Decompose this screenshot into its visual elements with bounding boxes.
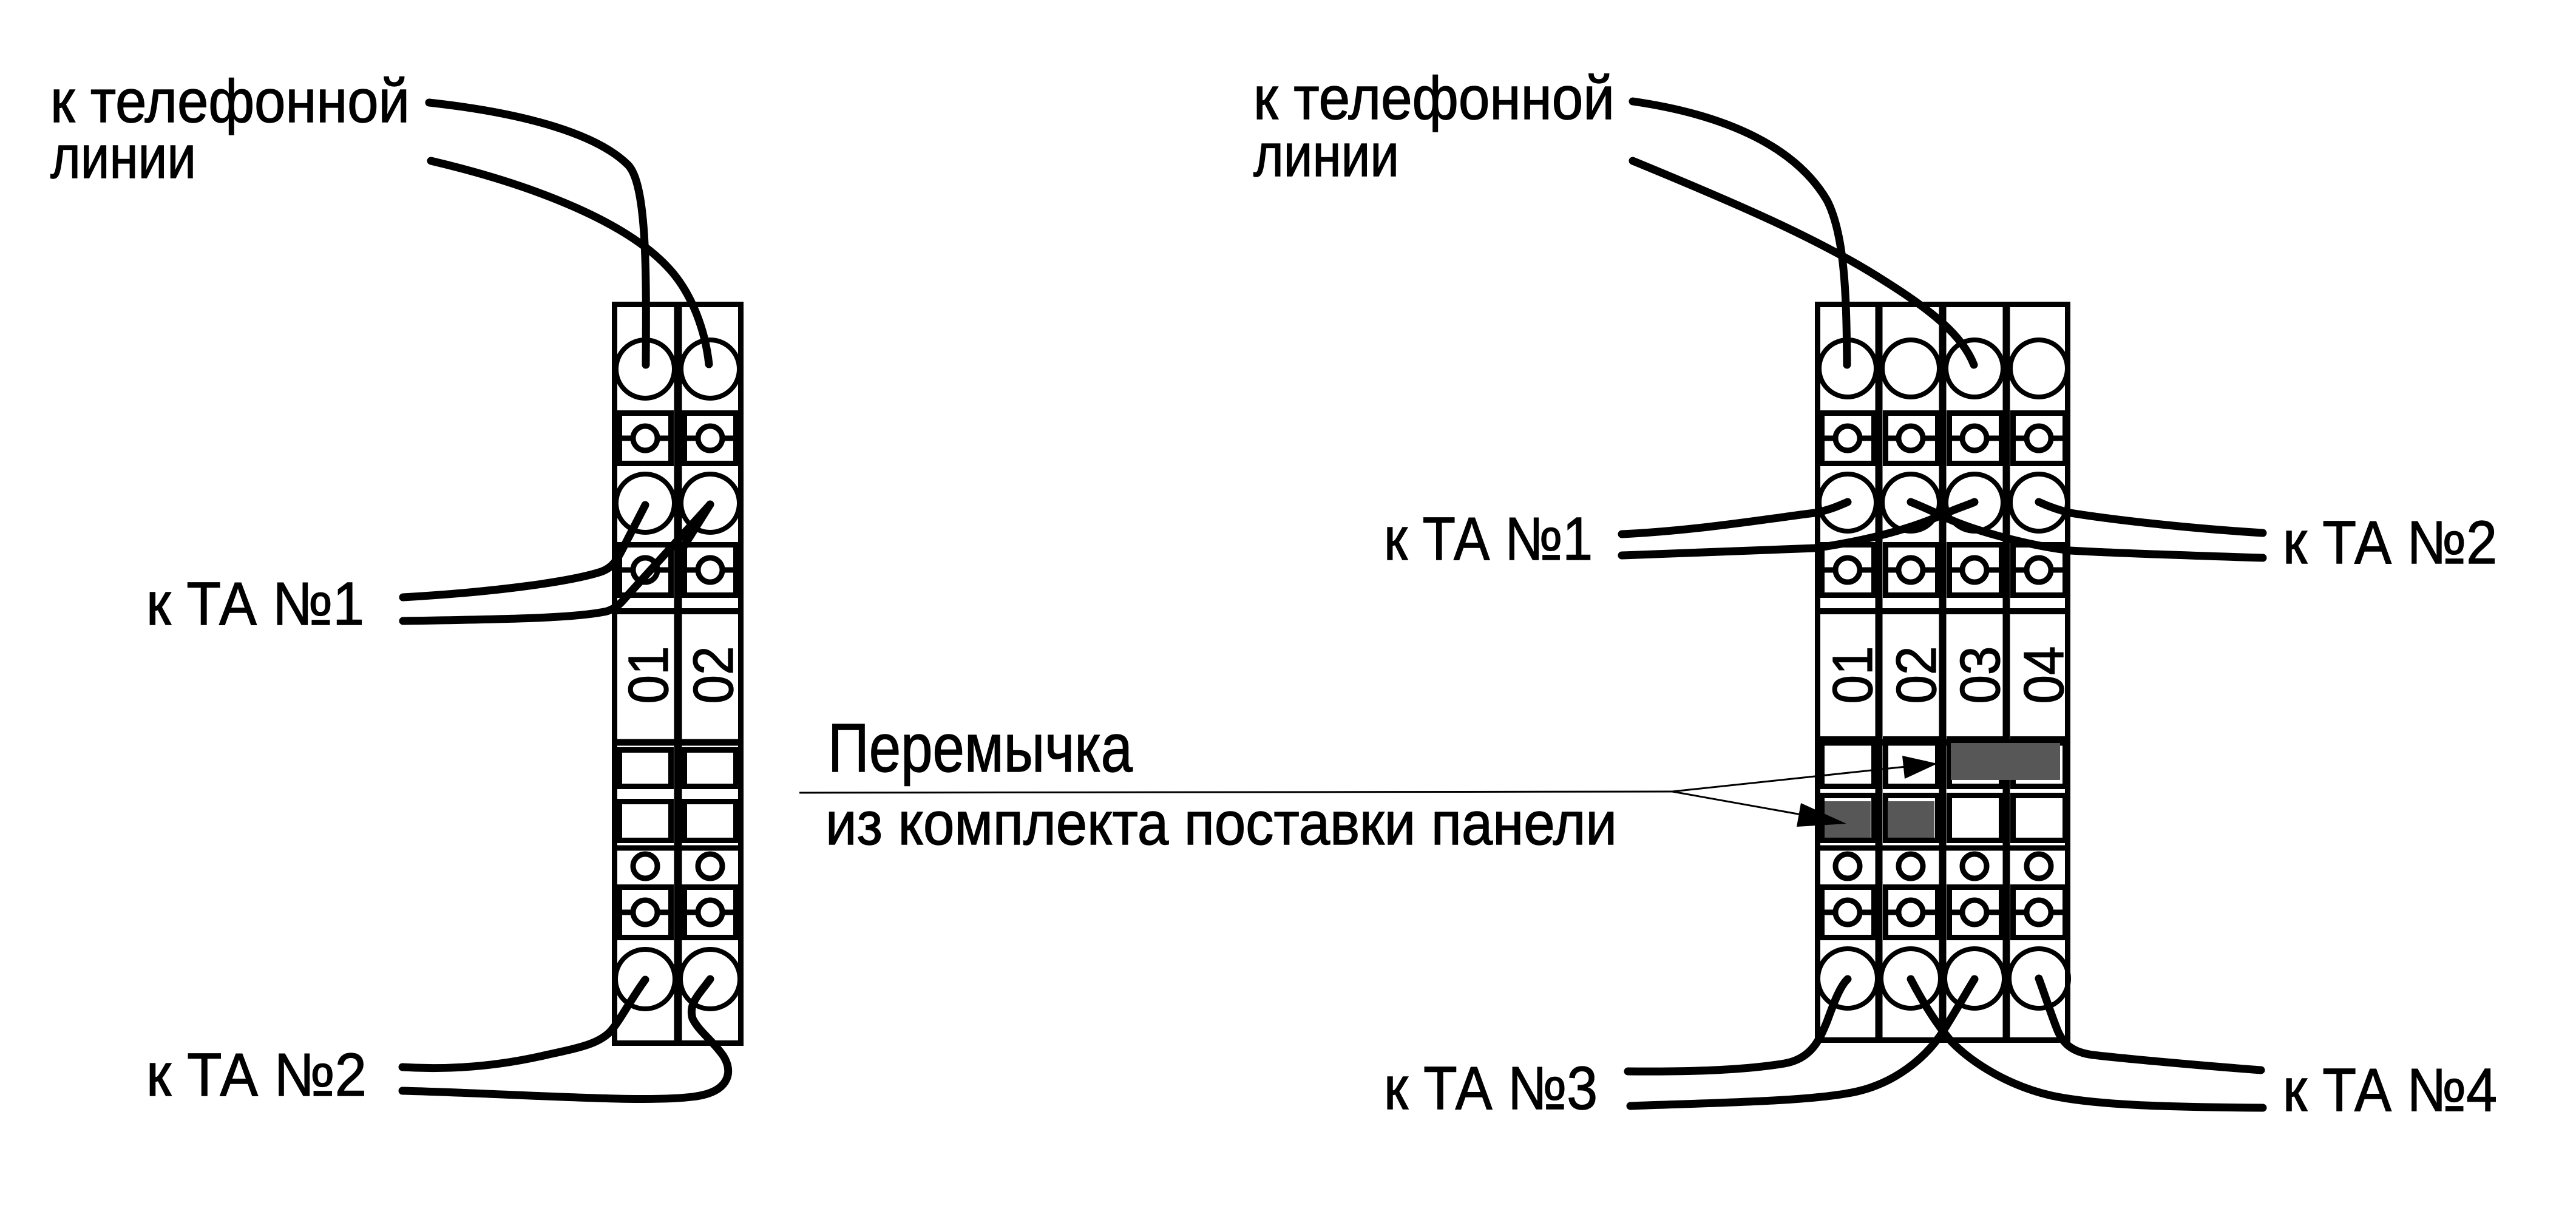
svg-text:к ТА №1: к ТА №1 [1384, 505, 1593, 573]
svg-text:Перемычка: Перемычка [828, 710, 1133, 786]
svg-text:к ТА №2: к ТА №2 [2283, 509, 2497, 577]
svg-text:03: 03 [1948, 646, 2012, 704]
svg-text:04: 04 [2012, 646, 2075, 704]
svg-text:02: 02 [1885, 646, 1948, 704]
svg-text:к ТА №1: к ТА №1 [146, 570, 364, 638]
svg-text:02: 02 [682, 646, 745, 704]
svg-text:к ТА №2: к ТА №2 [146, 1041, 367, 1109]
svg-text:01: 01 [1821, 646, 1884, 704]
svg-text:01: 01 [617, 646, 680, 704]
svg-text:к ТА №3: к ТА №3 [1384, 1054, 1598, 1122]
svg-text:к ТА №4: к ТА №4 [2283, 1056, 2497, 1124]
svg-text:линии: линии [50, 123, 196, 191]
svg-text:из комплекта поставки панели: из комплекта поставки панели [825, 790, 1617, 858]
svg-text:линии: линии [1253, 121, 1399, 189]
